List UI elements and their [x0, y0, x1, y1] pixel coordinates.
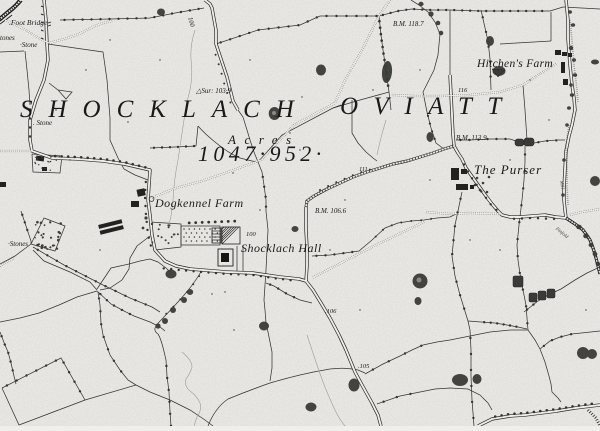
svg-text:B.M. 113.9: B.M. 113.9	[456, 134, 487, 142]
svg-text:SHOCKLACH: SHOCKLACH	[20, 96, 310, 123]
svg-text:B.M. 118.7: B.M. 118.7	[393, 20, 424, 28]
svg-text:.105: .105	[358, 363, 370, 370]
svg-text:1047·952·: 1047·952·	[198, 141, 326, 166]
svg-text:tones: tones	[0, 34, 15, 42]
svg-text:100: 100	[246, 231, 257, 238]
svg-text:116: 116	[458, 87, 468, 94]
svg-text:Shocklach Hall: Shocklach Hall	[241, 241, 322, 255]
svg-text:.106: .106	[325, 308, 337, 315]
svg-text:B.M. 106.6: B.M. 106.6	[315, 207, 347, 215]
svg-text:·Stones: ·Stones	[8, 240, 28, 248]
svg-text:111: 111	[359, 166, 368, 173]
svg-text:The Purser: The Purser	[474, 162, 542, 177]
svg-text:.Foot Bridge: .Foot Bridge	[9, 18, 48, 27]
svg-text:·Stone: ·Stone	[20, 41, 37, 49]
svg-text:. Stone: . Stone	[33, 119, 52, 127]
svg-text:△Sur: 103·9: △Sur: 103·9	[195, 87, 231, 95]
svg-text:OVIATT: OVIATT	[340, 93, 517, 120]
svg-text:Hitchen's Farm: Hitchen's Farm	[476, 58, 553, 70]
svg-text:Dogkennel Farm: Dogkennel Farm	[154, 196, 244, 210]
